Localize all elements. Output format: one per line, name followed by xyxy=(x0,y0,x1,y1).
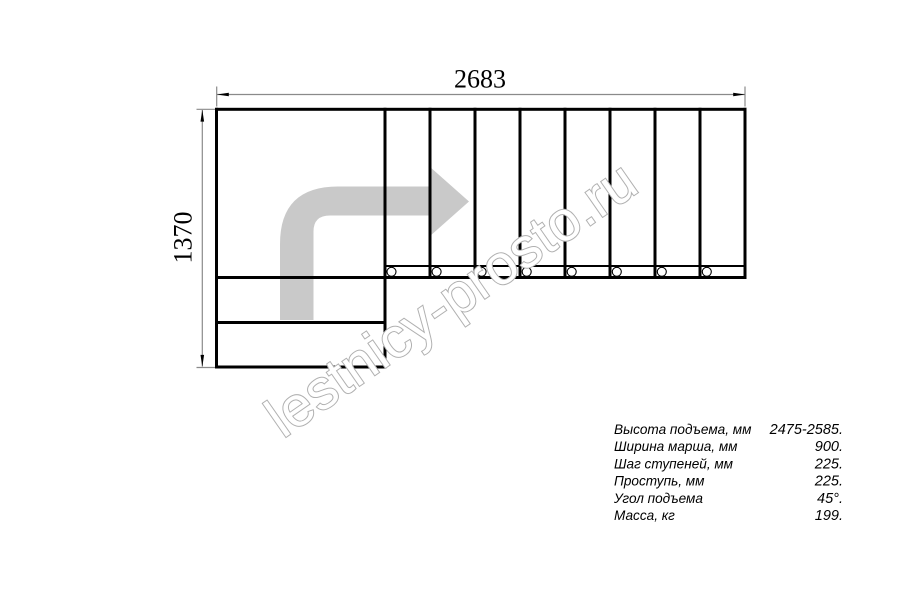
svg-text:225.: 225. xyxy=(814,474,843,490)
svg-text:199.: 199. xyxy=(815,508,843,524)
svg-text:Угол подъема: Угол подъема xyxy=(613,491,703,506)
svg-text:2683: 2683 xyxy=(454,65,506,94)
svg-text:900.: 900. xyxy=(815,439,843,455)
svg-text:Масса, кг: Масса, кг xyxy=(614,508,675,523)
svg-text:45°.: 45°. xyxy=(817,491,843,507)
svg-text:2475-2585.: 2475-2585. xyxy=(769,422,843,438)
svg-text:Ширина марша, мм: Ширина марша, мм xyxy=(614,439,738,454)
svg-text:225.: 225. xyxy=(814,456,843,472)
svg-text:1370: 1370 xyxy=(169,212,198,264)
svg-text:Проступь, мм: Проступь, мм xyxy=(614,474,705,489)
svg-text:Высота подъема, мм: Высота подъема, мм xyxy=(614,422,752,437)
svg-text:Шаг ступеней, мм: Шаг ступеней, мм xyxy=(614,456,734,471)
